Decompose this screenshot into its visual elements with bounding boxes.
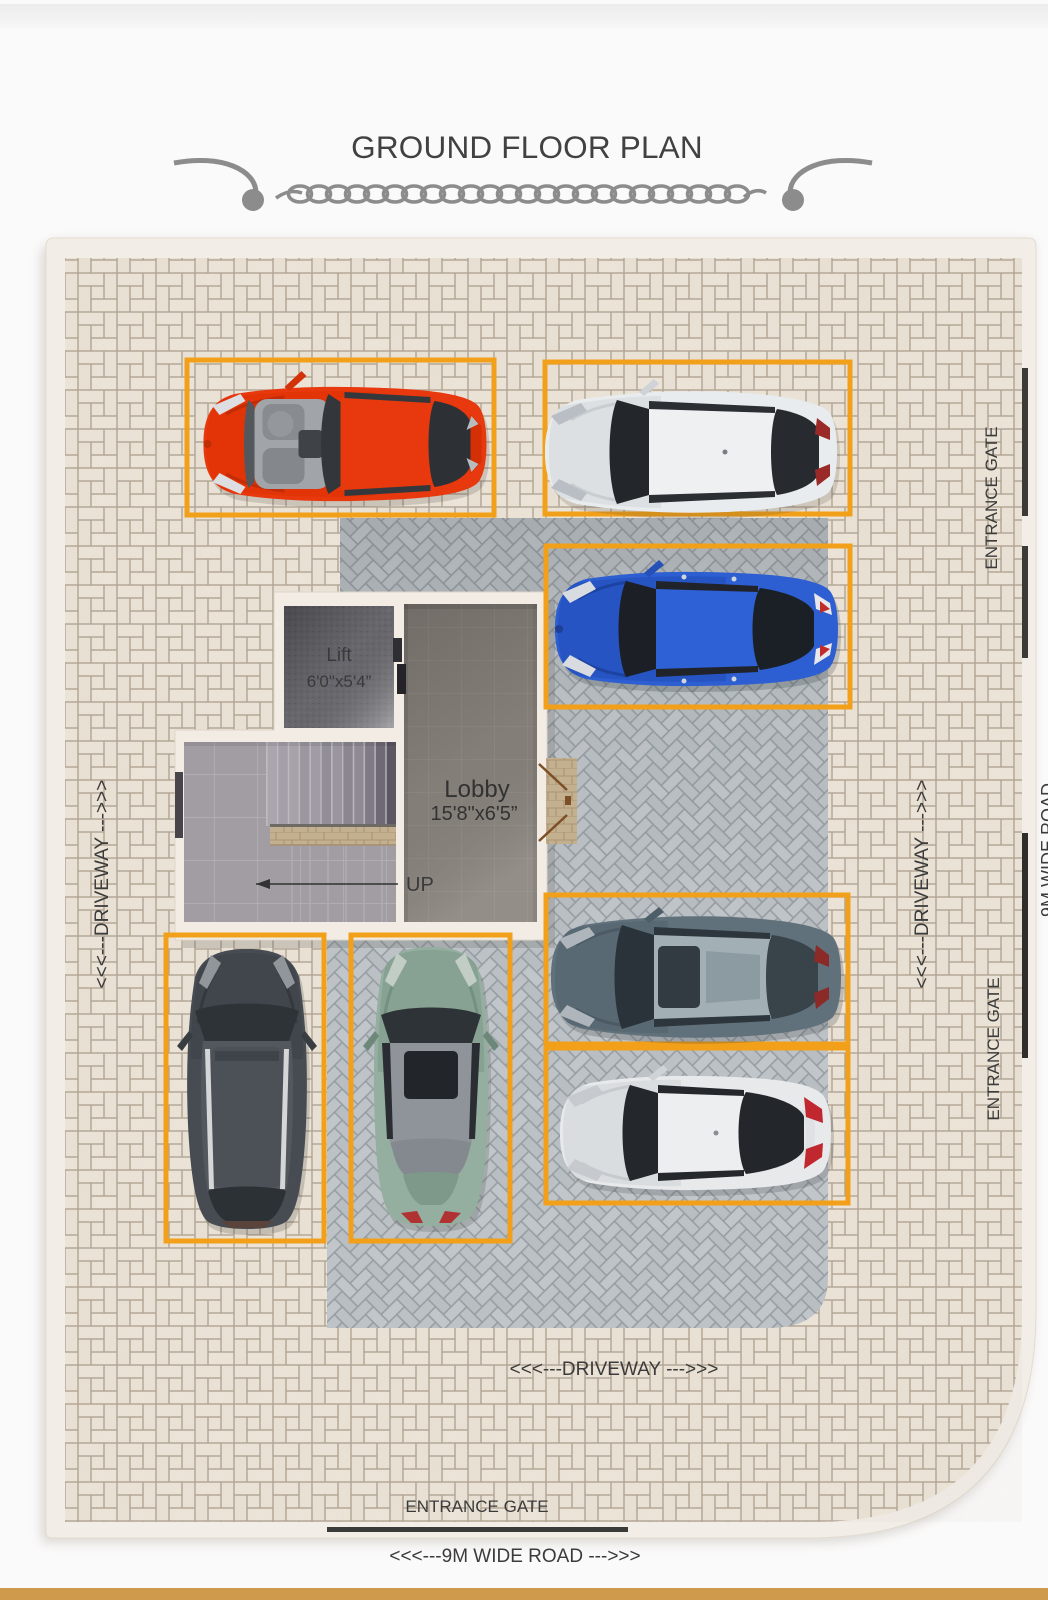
svg-text:ENTRANCE GATE: ENTRANCE GATE [984, 977, 1003, 1120]
svg-text:6'0"x5'4”: 6'0"x5'4” [307, 672, 372, 691]
svg-text:UP: UP [406, 874, 434, 896]
svg-text:<<<---9M WIDE ROAD --->>>: <<<---9M WIDE ROAD --->>> [389, 1546, 640, 1567]
svg-text:Lobby: Lobby [444, 776, 509, 803]
svg-text:ENTRANCE GATE: ENTRANCE GATE [405, 1497, 548, 1516]
svg-text:ENTRANCE GATE: ENTRANCE GATE [982, 426, 1001, 569]
svg-text:<<<---DRIVEWAY --->>>: <<<---DRIVEWAY --->>> [912, 780, 933, 989]
svg-text:GROUND FLOOR PLAN: GROUND FLOOR PLAN [351, 129, 703, 165]
svg-text:Lift: Lift [326, 645, 352, 666]
svg-text:15'8"x6'5”: 15'8"x6'5” [430, 803, 517, 825]
svg-text:<<<---DRIVEWAY --->>>: <<<---DRIVEWAY --->>> [510, 1359, 719, 1380]
svg-text:9M WIDE ROAD: 9M WIDE ROAD [1038, 783, 1048, 917]
svg-text:<<<---DRIVEWAY --->>>: <<<---DRIVEWAY --->>> [92, 780, 113, 989]
